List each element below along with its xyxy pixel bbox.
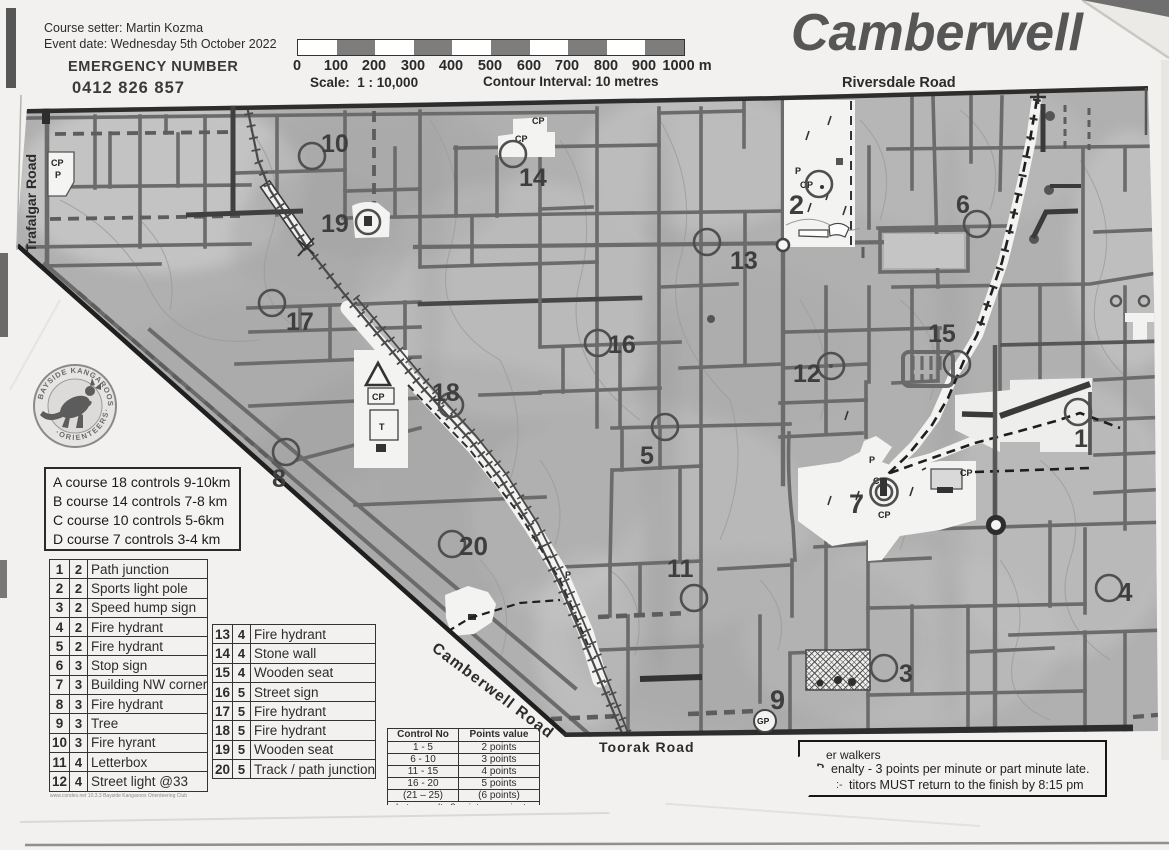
svg-text:20: 20 <box>459 531 488 561</box>
svg-text:CP: CP <box>878 510 891 520</box>
svg-text:Trafalgar Road: Trafalgar Road <box>23 154 39 252</box>
svg-text:12: 12 <box>793 360 821 388</box>
svg-text:2: 2 <box>789 190 804 220</box>
svg-text:8: 8 <box>272 465 286 493</box>
svg-text:7: 7 <box>849 489 864 519</box>
svg-text:CP: CP <box>372 392 385 402</box>
svg-text:P: P <box>869 455 875 465</box>
svg-text:5: 5 <box>640 442 654 470</box>
svg-text:P: P <box>565 570 571 580</box>
svg-text:1: 1 <box>1074 425 1088 453</box>
svg-text:Riversdale Road: Riversdale Road <box>842 75 956 91</box>
svg-text:9: 9 <box>770 685 785 715</box>
svg-text:GP: GP <box>757 716 770 726</box>
svg-text:3: 3 <box>899 660 913 688</box>
svg-text:CP: CP <box>51 158 64 168</box>
svg-text:10: 10 <box>321 130 349 158</box>
svg-text:Toorak Road: Toorak Road <box>599 739 695 755</box>
svg-text:T: T <box>379 422 385 432</box>
svg-text:15: 15 <box>928 320 956 348</box>
svg-text:18: 18 <box>432 379 460 407</box>
svg-text:19: 19 <box>321 210 349 238</box>
svg-text:17: 17 <box>286 308 314 336</box>
svg-text:11: 11 <box>667 555 694 583</box>
svg-text:6: 6 <box>956 191 970 219</box>
svg-text:CP: CP <box>532 116 545 126</box>
svg-text:14: 14 <box>519 164 547 192</box>
svg-text:CP: CP <box>960 468 973 478</box>
svg-text:P: P <box>55 170 61 180</box>
svg-text:13: 13 <box>730 247 758 275</box>
svg-text:P: P <box>795 166 801 176</box>
svg-text:16: 16 <box>608 331 636 359</box>
svg-text:4: 4 <box>1118 577 1133 607</box>
